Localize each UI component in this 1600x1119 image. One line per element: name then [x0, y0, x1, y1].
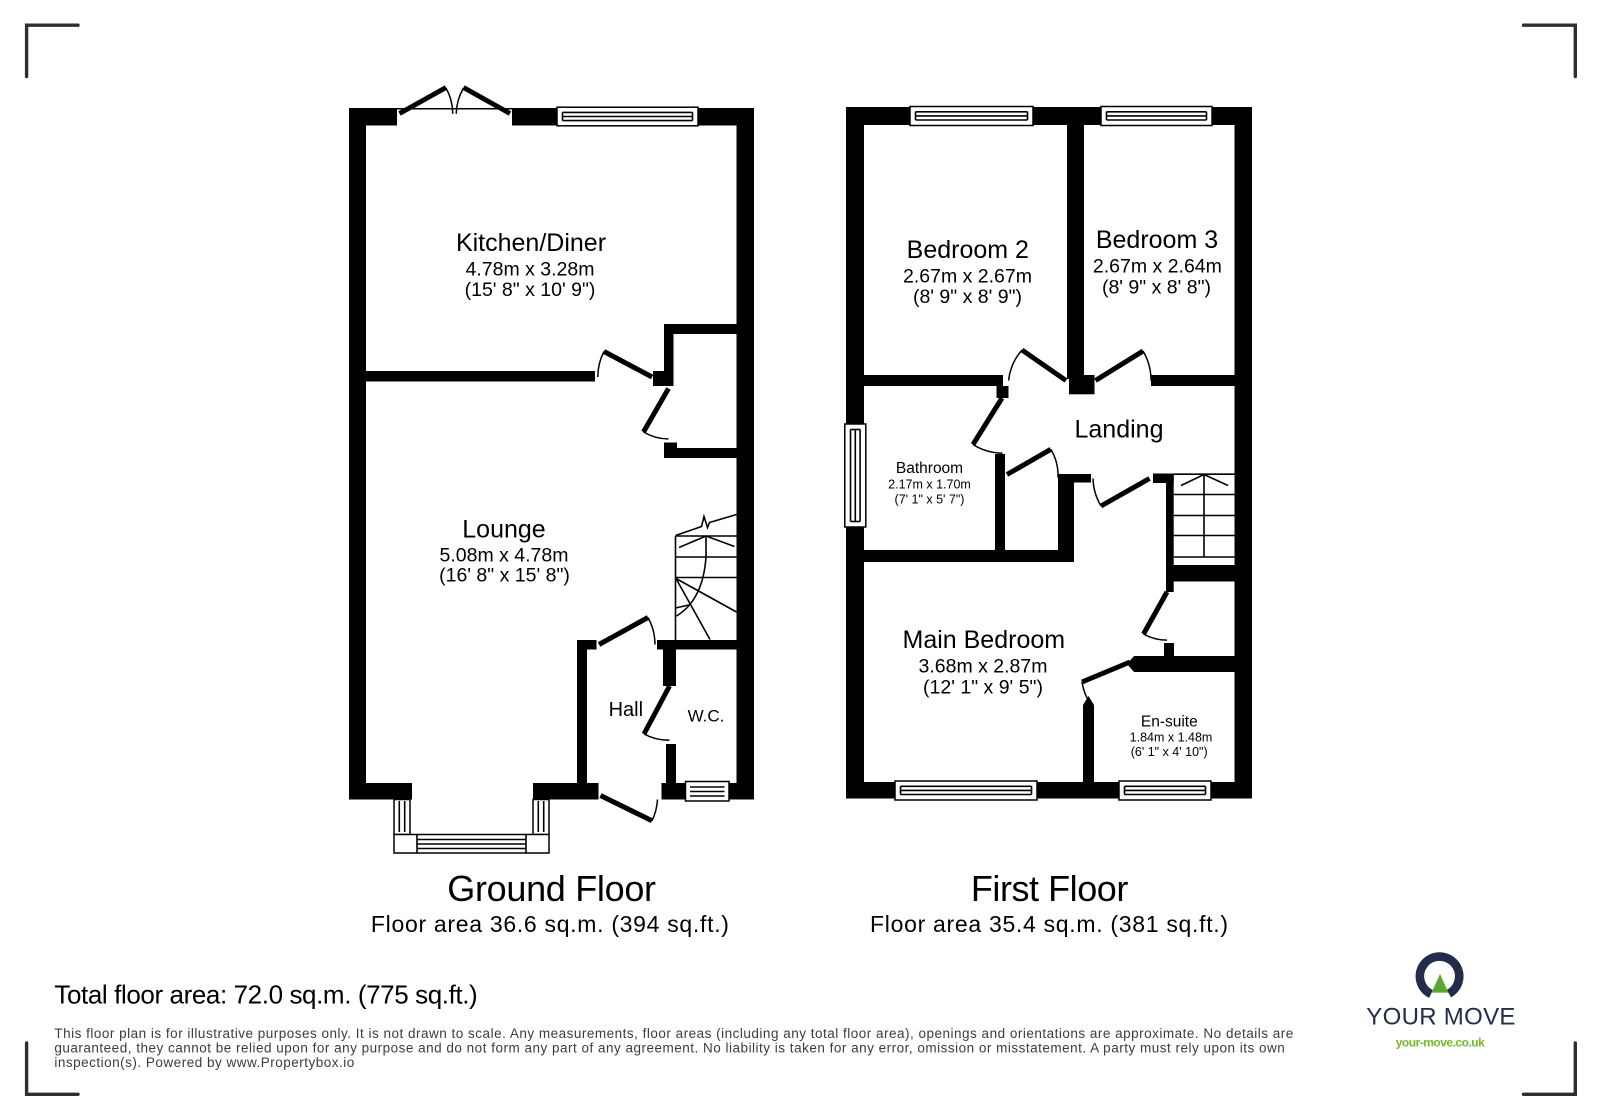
- svg-text:Floor area 36.6 sq.m. (394 sq.: Floor area 36.6 sq.m. (394 sq.ft.): [371, 911, 730, 937]
- svg-text:Main Bedroom: Main Bedroom: [903, 626, 1066, 654]
- svg-text:(6' 1" x 4' 10"): (6' 1" x 4' 10"): [1131, 745, 1208, 759]
- svg-text:Hall: Hall: [609, 699, 643, 721]
- svg-text:First Floor: First Floor: [971, 868, 1129, 909]
- svg-text:(15' 8" x 10' 9"): (15' 8" x 10' 9"): [465, 279, 596, 301]
- svg-text:(12' 1" x 9' 5"): (12' 1" x 9' 5"): [923, 677, 1043, 699]
- svg-text:2.17m x 1.70m: 2.17m x 1.70m: [888, 478, 971, 492]
- svg-text:(8' 9" x 8' 8"): (8' 9" x 8' 8"): [1102, 277, 1211, 299]
- svg-text:inspection(s). Powered by www.: inspection(s). Powered by www.Propertybo…: [54, 1055, 354, 1070]
- svg-text:your-move.co.uk: your-move.co.uk: [1396, 1035, 1485, 1049]
- svg-text:(8' 9" x 8' 9"): (8' 9" x 8' 9"): [913, 286, 1022, 308]
- svg-text:Kitchen/Diner: Kitchen/Diner: [456, 229, 606, 257]
- svg-text:This floor plan is for illustr: This floor plan is for illustrative purp…: [54, 1026, 1293, 1041]
- svg-text:2.67m x 2.64m: 2.67m x 2.64m: [1093, 256, 1222, 278]
- svg-text:2.67m x 2.67m: 2.67m x 2.67m: [903, 266, 1032, 288]
- svg-text:En-suite: En-suite: [1141, 714, 1198, 731]
- svg-text:guaranteed, they cannot be rel: guaranteed, they cannot be relied upon f…: [54, 1041, 1285, 1056]
- svg-text:Bathroom: Bathroom: [896, 460, 963, 477]
- svg-text:(7' 1" x 5' 7"): (7' 1" x 5' 7"): [895, 493, 965, 507]
- svg-text:1.84m x 1.48m: 1.84m x 1.48m: [1130, 731, 1213, 745]
- svg-text:Floor area 35.4 sq.m. (381 sq.: Floor area 35.4 sq.m. (381 sq.ft.): [870, 911, 1229, 937]
- svg-text:5.08m x 4.78m: 5.08m x 4.78m: [440, 545, 569, 567]
- svg-text:Total floor area: 72.0 sq.m. (: Total floor area: 72.0 sq.m. (775 sq.ft.…: [54, 980, 477, 1010]
- svg-text:(16' 8" x 15' 8"): (16' 8" x 15' 8"): [439, 565, 570, 587]
- svg-text:YOUR MOVE: YOUR MOVE: [1366, 1004, 1515, 1031]
- svg-text:Landing: Landing: [1075, 415, 1164, 443]
- svg-text:W.C.: W.C.: [688, 707, 725, 726]
- svg-text:Bedroom 3: Bedroom 3: [1096, 226, 1218, 254]
- svg-text:4.78m x 3.28m: 4.78m x 3.28m: [466, 259, 595, 281]
- svg-text:3.68m x 2.87m: 3.68m x 2.87m: [919, 656, 1048, 678]
- svg-text:Bedroom 2: Bedroom 2: [907, 236, 1029, 264]
- svg-text:Ground Floor: Ground Floor: [447, 868, 656, 909]
- svg-text:Lounge: Lounge: [462, 516, 545, 544]
